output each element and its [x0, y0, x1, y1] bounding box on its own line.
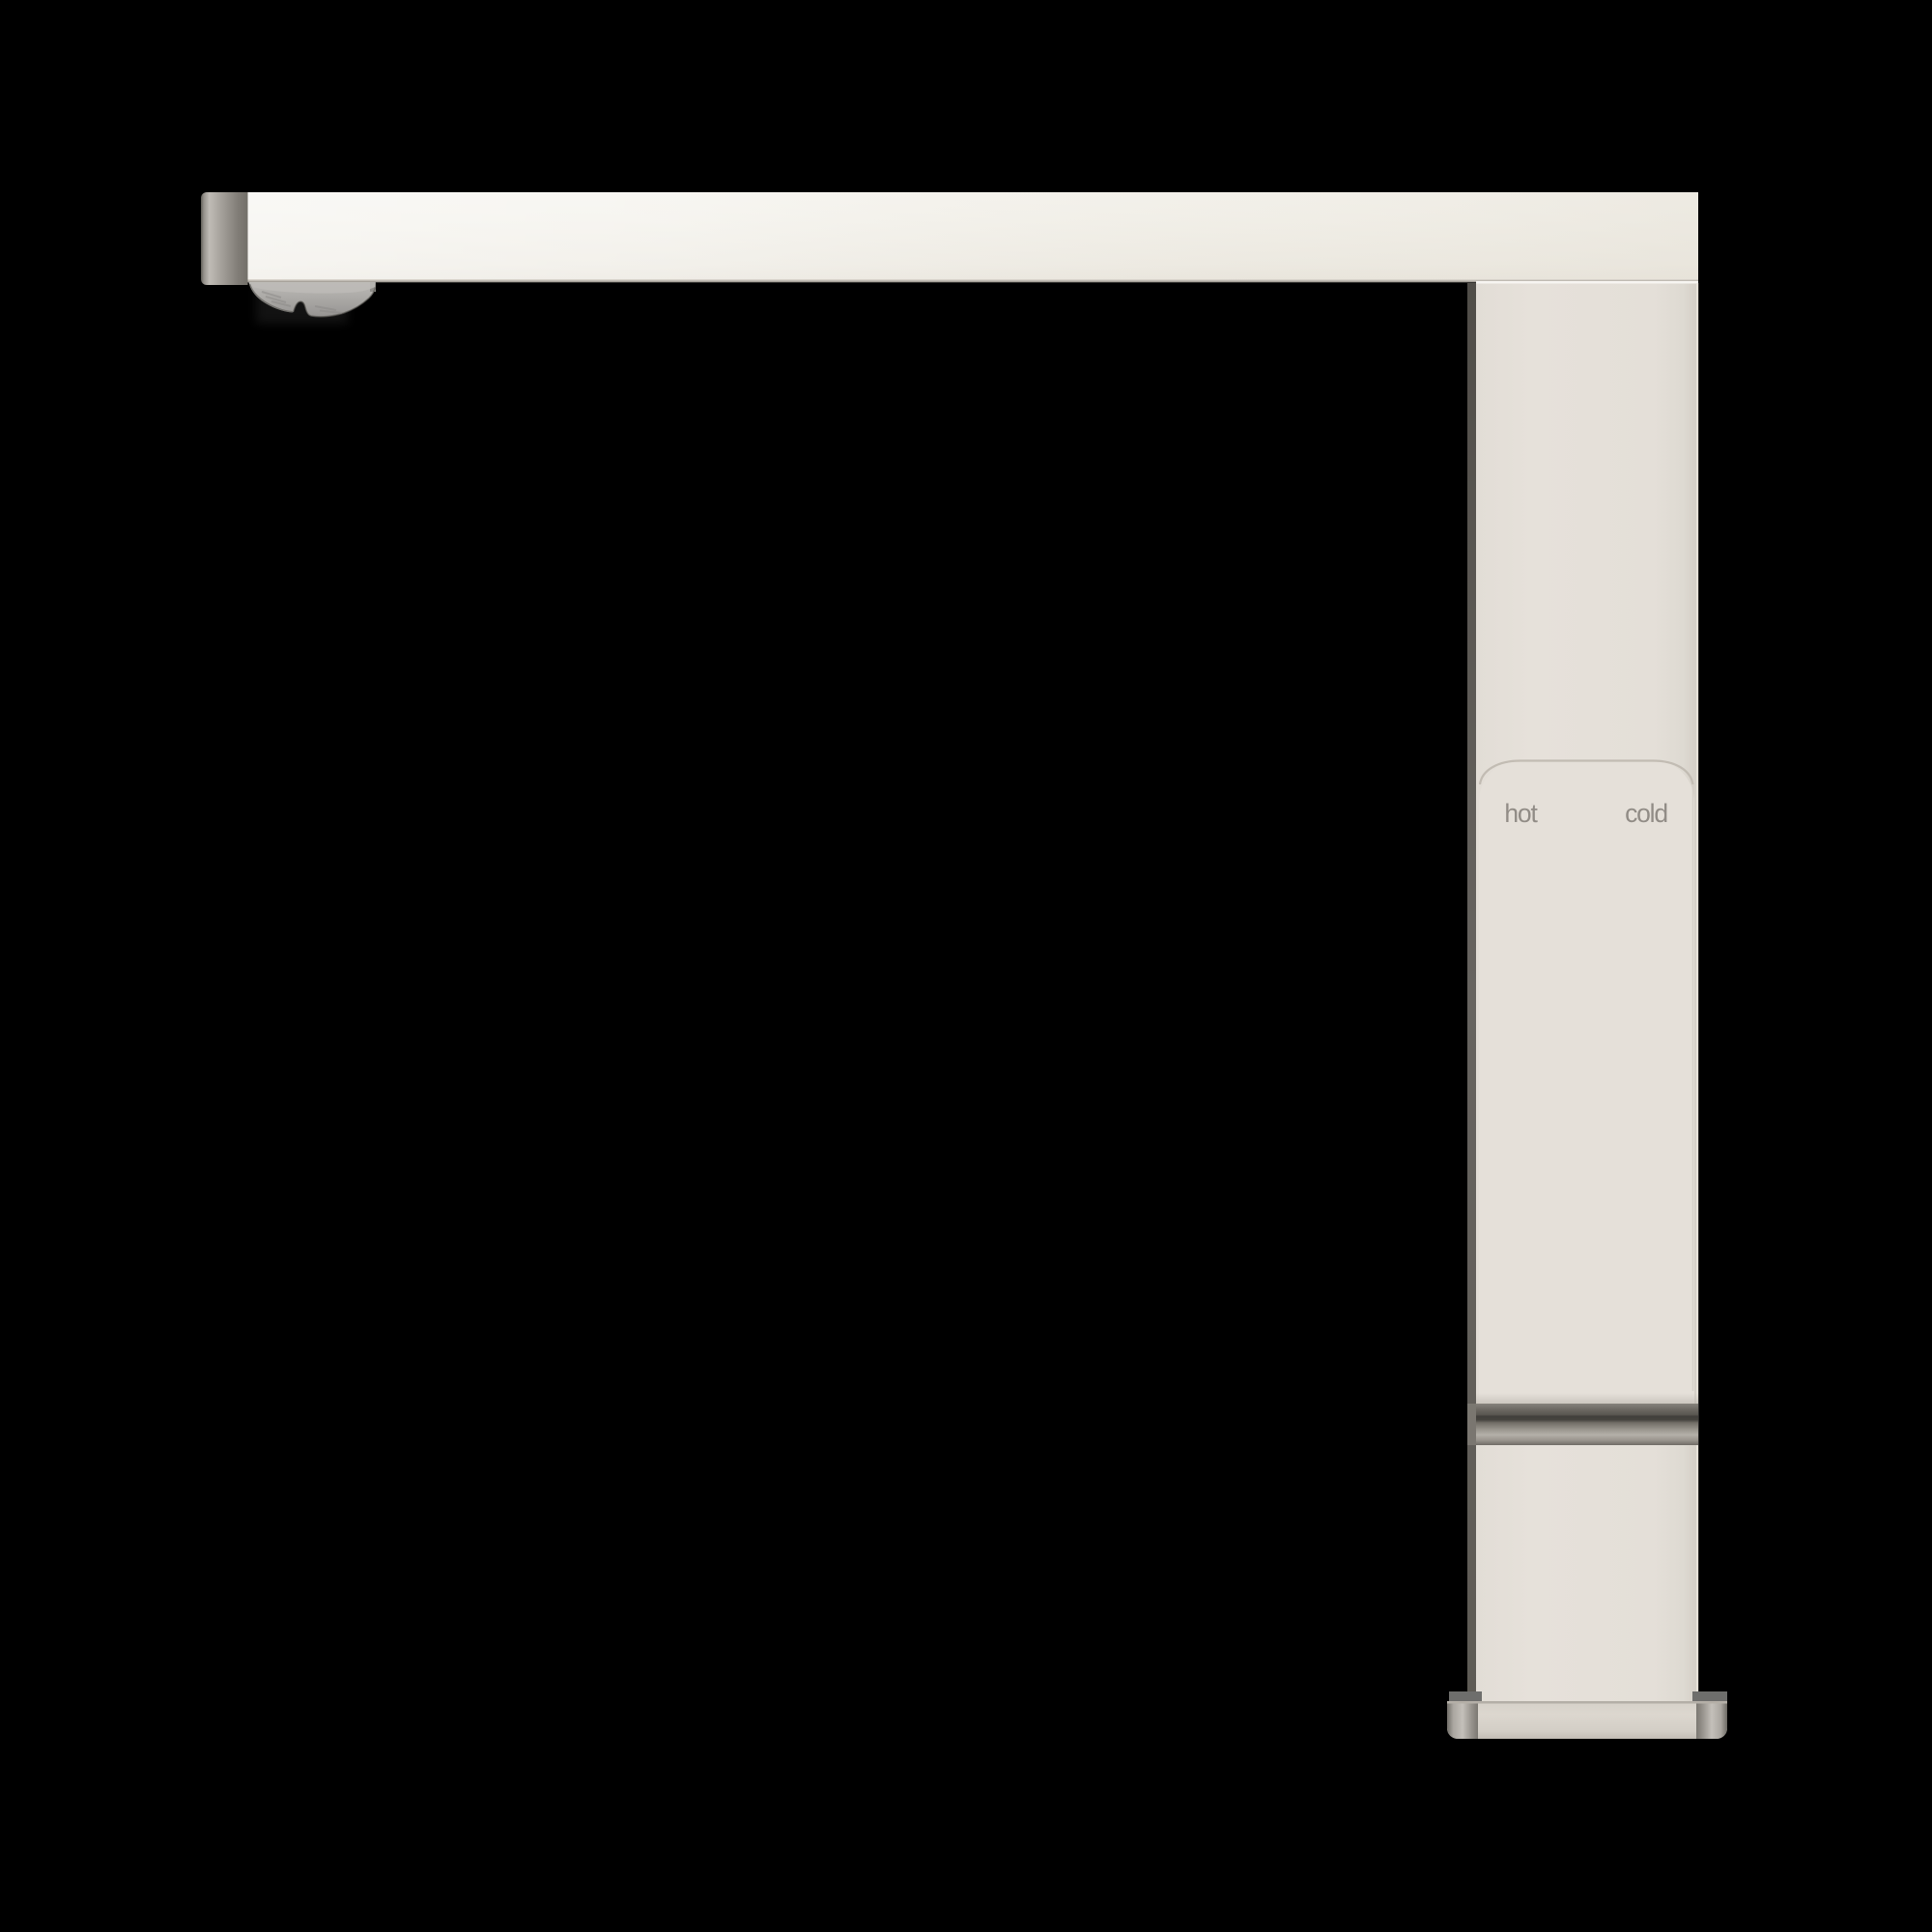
- svg-text:cold: cold: [1625, 799, 1667, 828]
- svg-text:hot: hot: [1504, 799, 1538, 828]
